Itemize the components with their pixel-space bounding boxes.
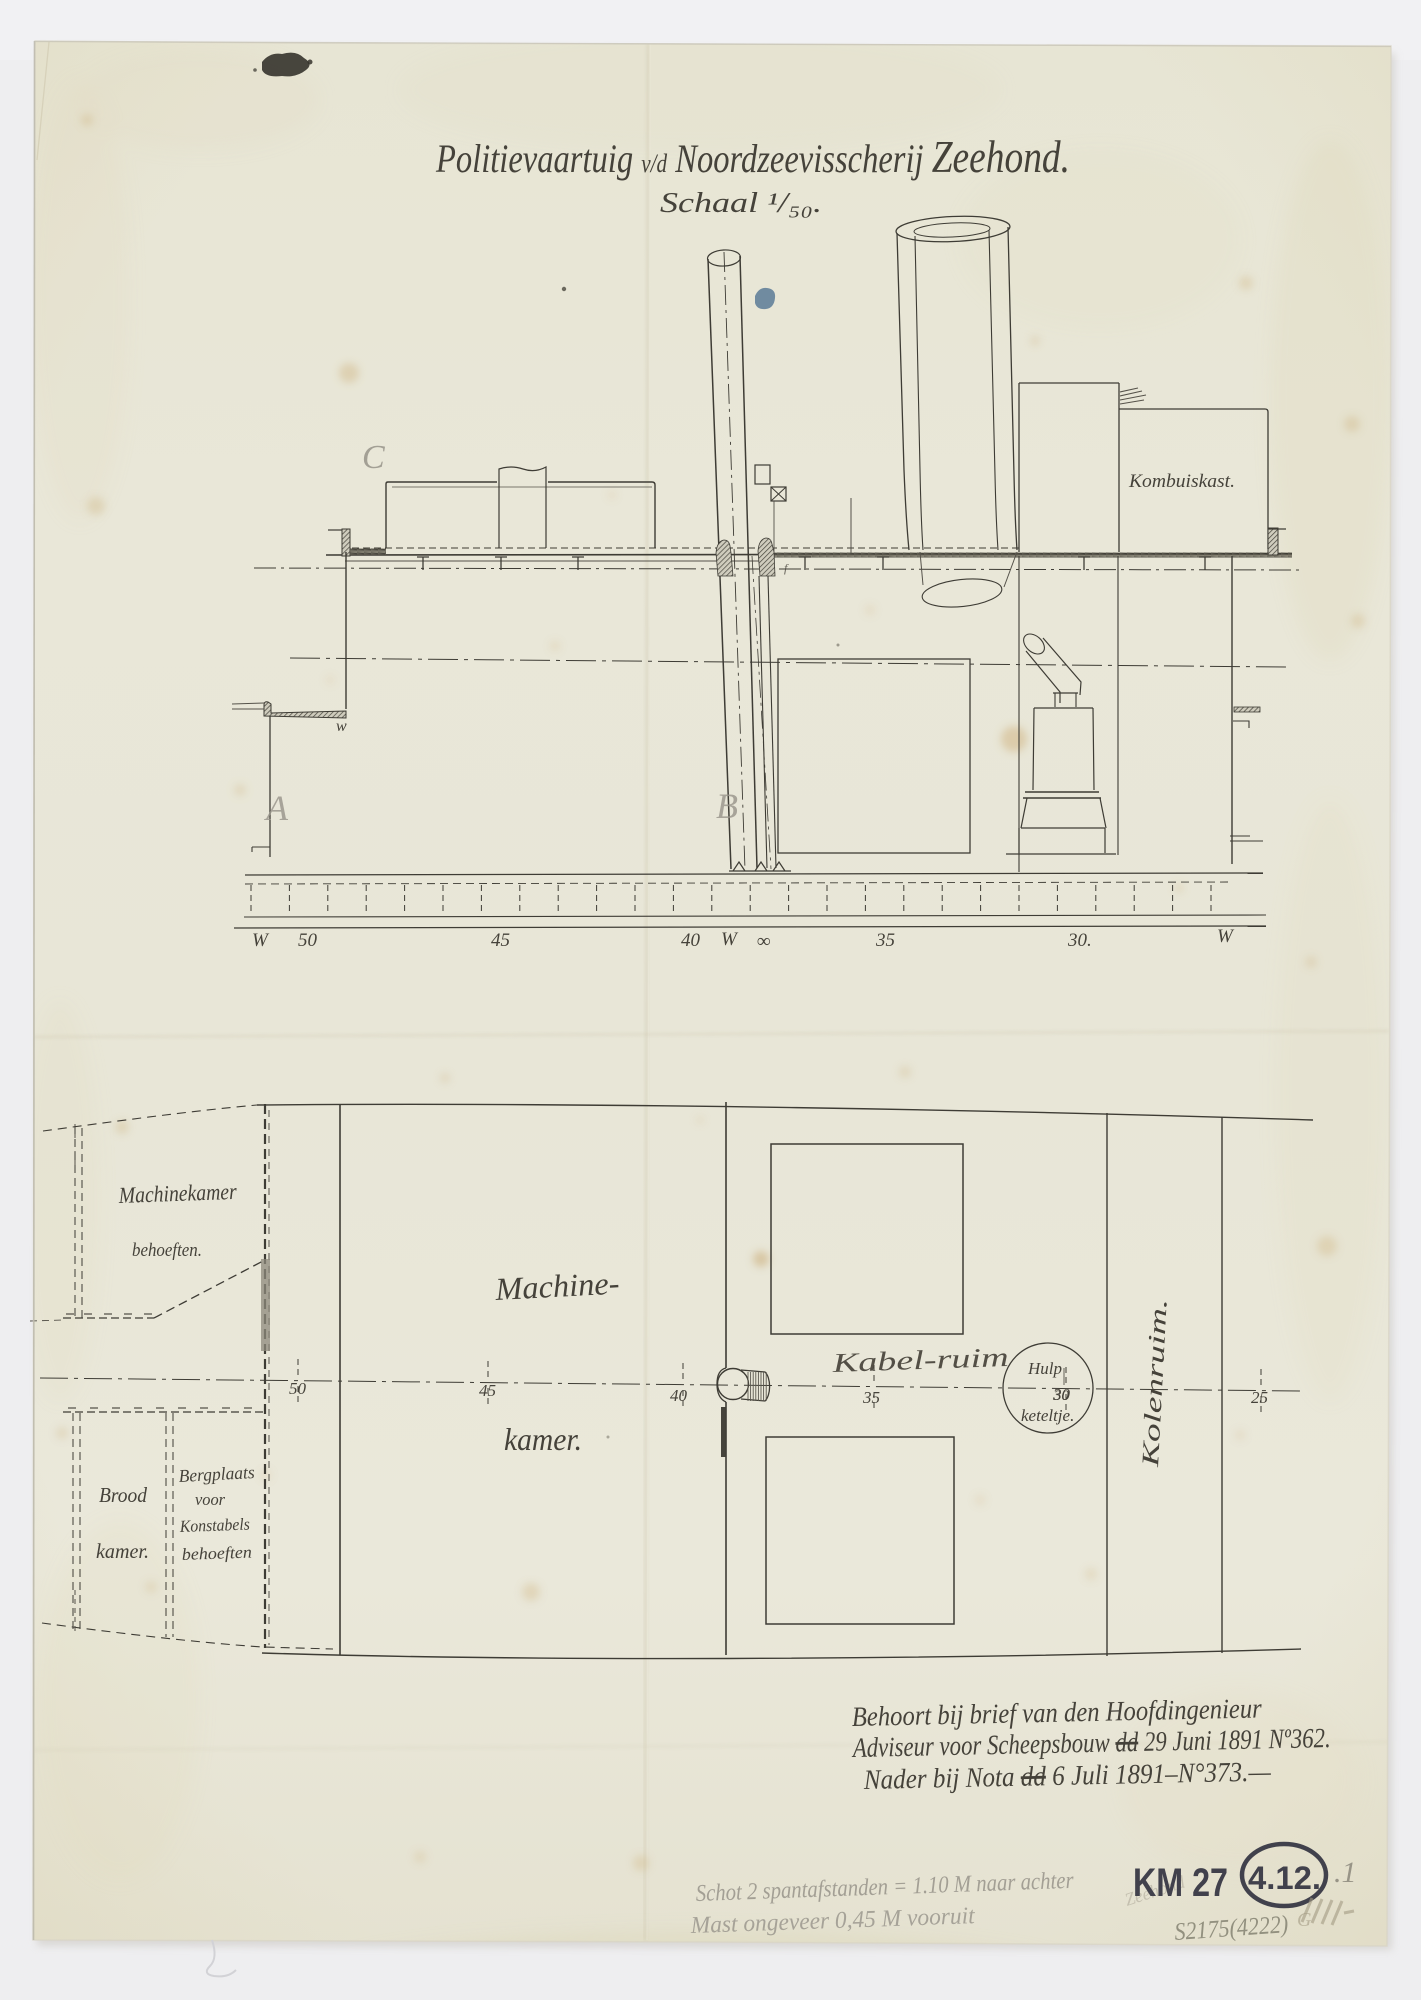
svg-text:50: 50 bbox=[298, 930, 318, 951]
svg-text:Kombuiskast.: Kombuiskast. bbox=[1128, 471, 1235, 492]
svg-text:behoeften: behoeften bbox=[181, 1543, 252, 1564]
svg-text:30: 30 bbox=[1053, 1388, 1070, 1404]
svg-text:Machine-: Machine- bbox=[493, 1265, 620, 1307]
svg-text:voor: voor bbox=[195, 1490, 225, 1509]
svg-text:Kabel-ruim: Kabel-ruim bbox=[831, 1342, 1009, 1378]
svg-text:W: W bbox=[252, 930, 270, 951]
svg-text:G: G bbox=[1297, 1909, 1312, 1931]
svg-text:30.: 30. bbox=[1067, 930, 1092, 951]
svg-text:C: C bbox=[362, 439, 385, 476]
svg-text:40: 40 bbox=[670, 1386, 688, 1405]
svg-text:Machinekamer: Machinekamer bbox=[117, 1179, 238, 1208]
svg-text:45: 45 bbox=[479, 1381, 496, 1400]
svg-text:kamer.: kamer. bbox=[96, 1539, 149, 1563]
svg-text:Konstabels: Konstabels bbox=[179, 1515, 251, 1536]
svg-text:keteltje.: keteltje. bbox=[1021, 1406, 1074, 1425]
svg-text:A: A bbox=[264, 788, 289, 828]
svg-text:w: w bbox=[336, 718, 347, 735]
svg-text:W: W bbox=[721, 929, 739, 950]
svg-text:Hulp: Hulp bbox=[1027, 1359, 1062, 1378]
svg-text:45: 45 bbox=[491, 930, 510, 951]
svg-text:kamer.: kamer. bbox=[504, 1421, 582, 1457]
svg-text:4.12.: 4.12. bbox=[1248, 1860, 1321, 1896]
svg-text:35: 35 bbox=[862, 1388, 880, 1407]
svg-text:Bergplaats: Bergplaats bbox=[178, 1462, 255, 1486]
svg-text:50: 50 bbox=[289, 1379, 307, 1398]
svg-text:25: 25 bbox=[1251, 1388, 1268, 1407]
svg-text:35: 35 bbox=[875, 930, 895, 951]
svg-text:Brood: Brood bbox=[99, 1483, 147, 1507]
svg-text:∞: ∞ bbox=[757, 931, 771, 952]
svg-text:behoeften.: behoeften. bbox=[132, 1240, 202, 1261]
svg-text:Politievaartuig v/d Noordzeevi: Politievaartuig v/d Noordzeevisscherij Z… bbox=[435, 131, 1070, 182]
svg-text:KM 27: KM 27 bbox=[1133, 1861, 1228, 1905]
svg-text:B: B bbox=[716, 786, 738, 826]
svg-text:40: 40 bbox=[681, 930, 701, 951]
svg-text:.1: .1 bbox=[1334, 1856, 1357, 1889]
svg-text:W: W bbox=[1217, 926, 1235, 947]
svg-text:Schaal ¹/₅₀.: Schaal ¹/₅₀. bbox=[660, 188, 822, 219]
